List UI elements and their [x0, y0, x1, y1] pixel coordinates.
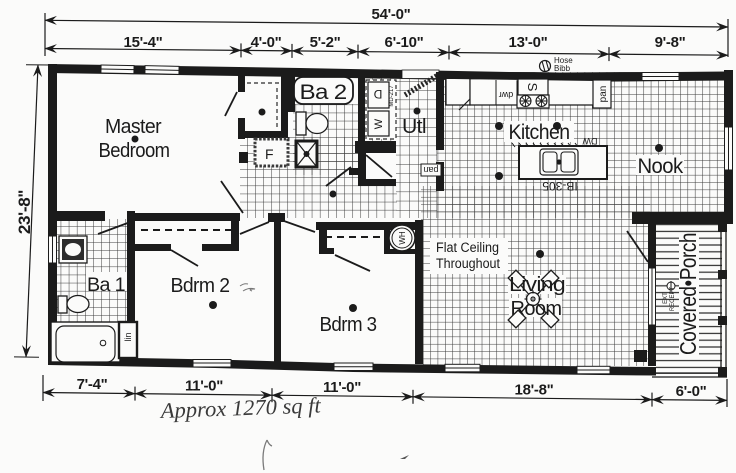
svg-text:Master: Master [105, 116, 162, 138]
svg-text:pan: pan [598, 86, 609, 103]
svg-text:EXT: EXT [663, 292, 669, 304]
svg-text:Room: Room [511, 298, 562, 320]
svg-text:Bedroom: Bedroom [99, 140, 170, 162]
svg-text:DW: DW [582, 136, 597, 146]
svg-text:Bdrm 2: Bdrm 2 [171, 275, 230, 297]
svg-text:pan: pan [423, 165, 438, 175]
svg-text:lin: lin [123, 332, 133, 341]
svg-text:Ba 1: Ba 1 [87, 275, 125, 296]
svg-text:11'-0": 11'-0" [323, 379, 361, 396]
svg-text:23'-8": 23'-8" [15, 190, 34, 234]
svg-text:Flat Ceiling: Flat Ceiling [436, 240, 499, 255]
svg-text:9'-8": 9'-8" [655, 34, 686, 51]
svg-text:WH: WH [398, 231, 407, 245]
svg-text:dwr: dwr [499, 90, 514, 100]
svg-text:Covered•Porch: Covered•Porch [675, 233, 701, 355]
svg-text:6'-10": 6'-10" [385, 34, 424, 51]
svg-text:Nook: Nook [638, 155, 684, 178]
svg-text:Living: Living [509, 274, 565, 296]
svg-text:Bdrm 3: Bdrm 3 [320, 314, 377, 336]
svg-text:18'-8": 18'-8" [515, 382, 554, 399]
svg-text:Utl: Utl [402, 116, 426, 138]
svg-text:5'-2": 5'-2" [310, 34, 341, 51]
svg-text:Bibb: Bibb [554, 64, 571, 73]
svg-text:11'-0": 11'-0" [185, 378, 223, 395]
svg-text:Throughout: Throughout [436, 256, 500, 271]
svg-text:IB-305: IB-305 [542, 179, 578, 193]
svg-text:MD-217: MD-217 [389, 85, 395, 107]
svg-text:6'-0": 6'-0" [676, 383, 707, 400]
svg-text:54'-0": 54'-0" [372, 6, 411, 23]
svg-text:15'-4": 15'-4" [124, 34, 163, 51]
svg-text:13'-0": 13'-0" [509, 34, 548, 51]
svg-text:F: F [265, 146, 274, 162]
svg-text:Ba 2: Ba 2 [300, 81, 347, 104]
svg-text:4'-0": 4'-0" [251, 34, 282, 51]
svg-text:W: W [373, 118, 385, 129]
svg-text:7'-4": 7'-4" [77, 376, 108, 393]
svg-text:S: S [525, 83, 540, 92]
svg-text:D: D [373, 87, 382, 101]
